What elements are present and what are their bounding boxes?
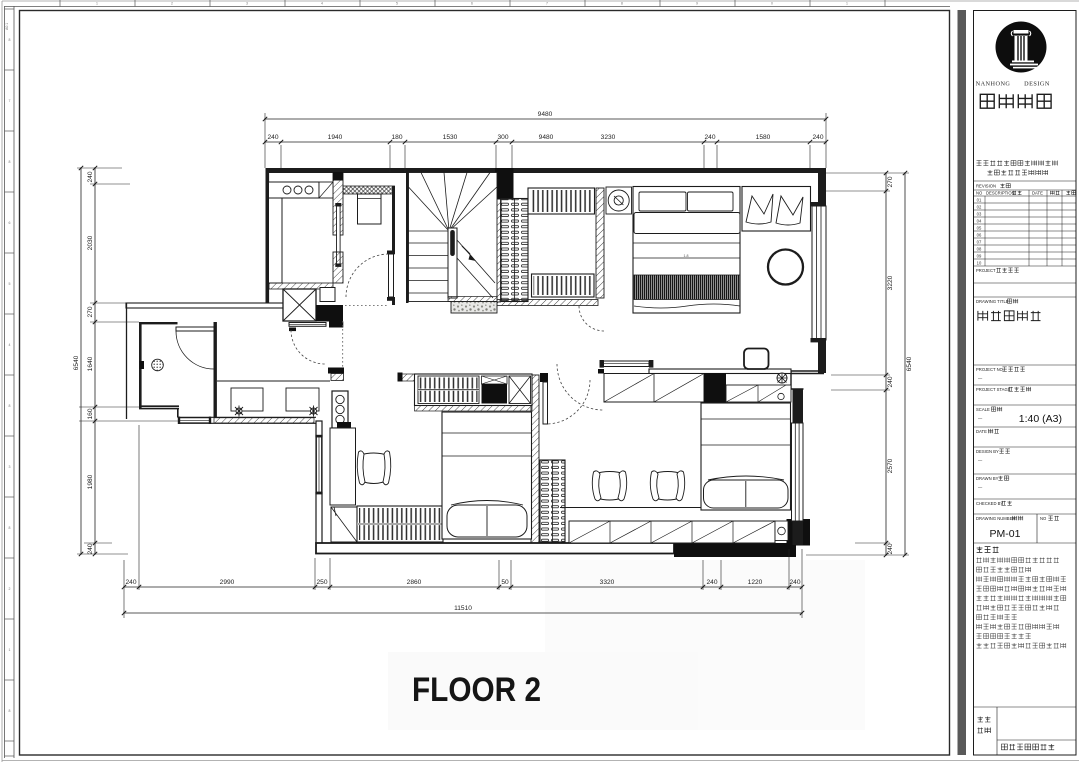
svg-text:4: 4	[321, 1, 323, 5]
svg-text:PM-01: PM-01	[990, 528, 1021, 540]
svg-text:1: 1	[9, 648, 11, 652]
svg-text:240: 240	[789, 579, 800, 586]
svg-text:2: 2	[9, 587, 11, 591]
svg-text:6: 6	[471, 1, 473, 5]
svg-text:DATE: DATE	[1032, 191, 1043, 196]
svg-text:50: 50	[501, 579, 509, 586]
svg-text:1980: 1980	[87, 474, 94, 489]
svg-text:2: 2	[171, 1, 173, 5]
svg-text:FLOOR 2: FLOOR 2	[412, 671, 541, 709]
svg-text:DESCRIPTION: DESCRIPTION	[986, 191, 1015, 196]
svg-text:7: 7	[9, 99, 11, 103]
svg-text:08: 08	[977, 246, 982, 251]
svg-text:240: 240	[812, 134, 823, 141]
svg-text:1220: 1220	[748, 579, 763, 586]
svg-text:5: 5	[396, 1, 398, 5]
svg-text:DRAWING NUMBER: DRAWING NUMBER	[976, 516, 1015, 521]
svg-text:1: 1	[96, 1, 98, 5]
svg-text:2570: 2570	[887, 458, 894, 473]
svg-text:1640: 1640	[87, 356, 94, 371]
svg-text:8: 8	[9, 160, 11, 164]
svg-text:DRAWN BY: DRAWN BY	[976, 476, 999, 481]
svg-text:PROJECT: PROJECT	[976, 268, 996, 273]
svg-text:9480: 9480	[538, 111, 553, 118]
svg-text:02: 02	[977, 204, 982, 209]
svg-text:6540: 6540	[73, 355, 80, 370]
svg-text:DATE: DATE	[976, 429, 987, 434]
svg-text:9480: 9480	[539, 134, 554, 141]
svg-text:240: 240	[87, 171, 94, 182]
svg-text:03: 03	[977, 211, 982, 216]
svg-text:240: 240	[87, 543, 94, 554]
svg-text:06: 06	[977, 232, 982, 237]
svg-text:DESIGN BY: DESIGN BY	[976, 449, 999, 454]
svg-text:8: 8	[621, 1, 623, 5]
svg-text:07: 07	[977, 239, 982, 244]
svg-text:3: 3	[246, 1, 248, 5]
svg-text:1:40 (A3): 1:40 (A3)	[1019, 413, 1062, 425]
svg-text:3: 3	[9, 465, 11, 469]
svg-text:11510: 11510	[454, 605, 472, 612]
svg-text:4: 4	[9, 343, 11, 347]
svg-text:6: 6	[9, 221, 11, 225]
svg-text:2990: 2990	[220, 579, 235, 586]
svg-text:300: 300	[497, 134, 508, 141]
svg-text:6540: 6540	[906, 356, 913, 371]
svg-text:DRAWING TITLE: DRAWING TITLE	[976, 299, 1009, 304]
svg-text:1580: 1580	[756, 134, 771, 141]
svg-text:SCALE: SCALE	[976, 407, 990, 412]
svg-text:240: 240	[887, 376, 894, 387]
svg-text:DESIGN: DESIGN	[1024, 81, 1050, 88]
svg-text:REVISION: REVISION	[976, 184, 996, 189]
svg-text:8: 8	[9, 404, 11, 408]
svg-text:3320: 3320	[600, 579, 615, 586]
svg-text:3220: 3220	[887, 275, 894, 290]
svg-text:NANHONG: NANHONG	[976, 81, 1011, 88]
svg-text:7: 7	[546, 1, 548, 5]
svg-text:9: 9	[696, 1, 698, 5]
svg-text:1.8: 1.8	[684, 254, 689, 258]
svg-text:CHECKED BY: CHECKED BY	[976, 501, 1003, 506]
svg-text:240: 240	[706, 579, 717, 586]
svg-text:8: 8	[9, 709, 11, 713]
svg-text:2030: 2030	[87, 235, 94, 250]
svg-text:09: 09	[977, 253, 982, 258]
svg-text:240: 240	[887, 543, 894, 554]
svg-text:160: 160	[87, 408, 94, 419]
svg-text:250: 250	[316, 579, 327, 586]
svg-text:8: 8	[9, 526, 11, 530]
svg-text:A0:1: A0:1	[5, 23, 9, 30]
svg-text:NO: NO	[976, 191, 983, 196]
svg-text:3230: 3230	[601, 134, 616, 141]
svg-text:PROJECT NO.: PROJECT NO.	[976, 367, 1004, 372]
svg-text:NO: NO	[1040, 516, 1047, 521]
svg-text:240: 240	[704, 134, 715, 141]
svg-text:240: 240	[125, 579, 136, 586]
svg-text:2860: 2860	[407, 579, 422, 586]
svg-text:05: 05	[977, 225, 982, 230]
svg-text:01: 01	[977, 197, 982, 202]
svg-text:0: 0	[771, 1, 773, 5]
svg-text:1: 1	[846, 1, 848, 5]
svg-text:5: 5	[9, 282, 11, 286]
svg-text:270: 270	[87, 306, 94, 317]
svg-text:8: 8	[9, 38, 11, 42]
svg-text:04: 04	[977, 218, 982, 223]
svg-text:240: 240	[267, 134, 278, 141]
svg-text:180: 180	[391, 134, 402, 141]
svg-text:1530: 1530	[443, 134, 458, 141]
svg-text:270: 270	[887, 176, 894, 187]
svg-text:1940: 1940	[328, 134, 343, 141]
svg-text:PROJECT STAGE: PROJECT STAGE	[976, 387, 1011, 392]
svg-text:10: 10	[977, 260, 982, 265]
